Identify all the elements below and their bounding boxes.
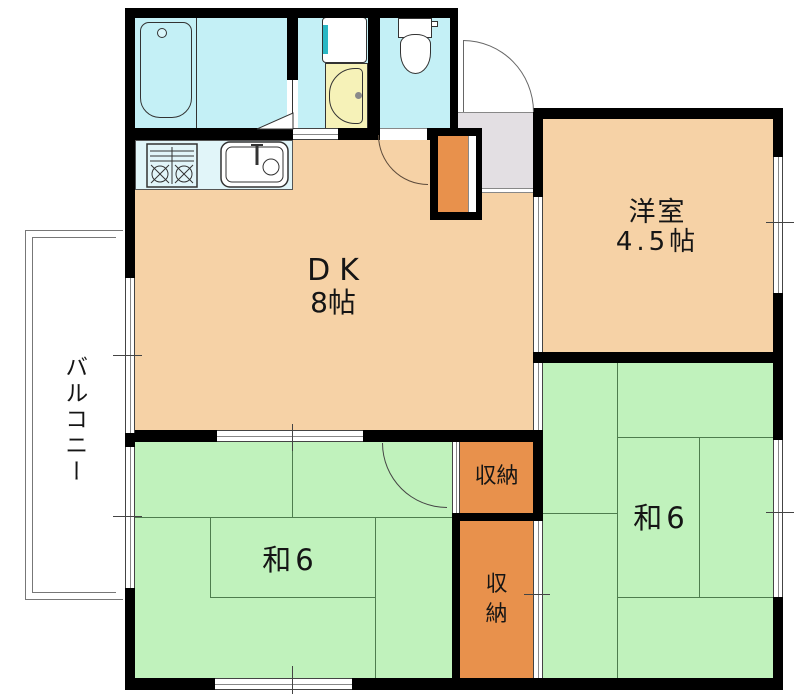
room-size-western: 4.5帖 <box>595 228 720 257</box>
tatami-line <box>543 513 617 514</box>
fusuma-dk-tatami <box>217 430 363 442</box>
wall-bottom-left <box>125 678 215 690</box>
shoe-cabinet-door <box>468 136 476 212</box>
wall-top <box>125 8 458 18</box>
wall-left-lower <box>125 588 135 690</box>
closet-upper-label: 収納 <box>460 465 533 490</box>
tatami-line <box>292 442 293 517</box>
wall-western-top <box>533 108 783 119</box>
wall-western-bottom <box>533 352 783 363</box>
room-label-tatami-right: 和6 <box>611 502 711 534</box>
room-label-tatami-left: 和6 <box>240 544 340 576</box>
wall-bath-washroom <box>287 18 298 80</box>
tatami-line <box>135 517 452 518</box>
tatami-line <box>210 517 211 597</box>
window-tick <box>292 424 293 451</box>
wall-washroom-toilet <box>368 18 380 140</box>
window-balcony-tatami <box>125 447 135 588</box>
gas-stove-icon <box>146 143 198 188</box>
kitchen-sink-icon <box>220 141 290 189</box>
wall-dk-tatami-left <box>125 430 217 442</box>
wall-left-upper <box>125 8 135 278</box>
window-tick <box>766 512 794 513</box>
wall-closet-right-upper <box>533 442 543 521</box>
sliding-door-dk-western <box>533 197 543 352</box>
room-label-dk: DK <box>283 254 383 288</box>
toilet-handle <box>431 21 438 27</box>
washroom-door-opening <box>293 128 338 140</box>
washroom-door-leaf <box>255 110 295 132</box>
sliding-door-closet-upper <box>452 442 460 513</box>
tatami-line <box>617 597 773 598</box>
window-tick <box>766 222 794 223</box>
room-label-western: 洋室 <box>595 198 720 228</box>
window-western <box>773 157 783 293</box>
closet-lower-label: 収納 <box>483 570 510 629</box>
window-tatami-right <box>773 440 783 597</box>
tatami-line <box>617 437 773 438</box>
sliding-door-dk-tatami-right <box>533 363 543 430</box>
tatami-line <box>210 597 375 598</box>
entrance-door-arc <box>463 40 534 112</box>
bathroom-divider-line <box>196 18 197 128</box>
vanity-drain <box>355 92 362 99</box>
window-tick <box>292 666 293 694</box>
entrance-door-leaf <box>463 40 464 112</box>
room-size-dk: 8帖 <box>283 287 383 318</box>
wall-mid-upper <box>533 112 543 197</box>
balcony-label: バルコニー <box>60 335 86 505</box>
wall-bottom-right <box>352 678 783 690</box>
wall-right-lower <box>773 597 783 690</box>
window-tatami-bottom <box>215 678 352 690</box>
wall-toilet-right <box>450 8 458 140</box>
sliding-door-closet-lower <box>533 521 543 678</box>
washing-machine-icon <box>322 17 367 63</box>
tatami-line <box>375 517 376 678</box>
wall-dk-tatami-right <box>363 430 543 442</box>
washing-machine-accent <box>323 25 328 54</box>
window-tick <box>524 594 550 595</box>
bathtub-drain-icon <box>157 28 167 38</box>
floor-plan: DK 8帖 洋室 4.5帖 和6 和6 収納 収納 バルコニー <box>0 0 800 694</box>
wall-closet-divider <box>452 513 543 521</box>
bathtub-icon <box>140 22 192 118</box>
wall-right-mid <box>773 293 783 440</box>
shoe-cabinet-icon <box>438 136 468 212</box>
wall-closet-left-lower <box>452 513 460 690</box>
